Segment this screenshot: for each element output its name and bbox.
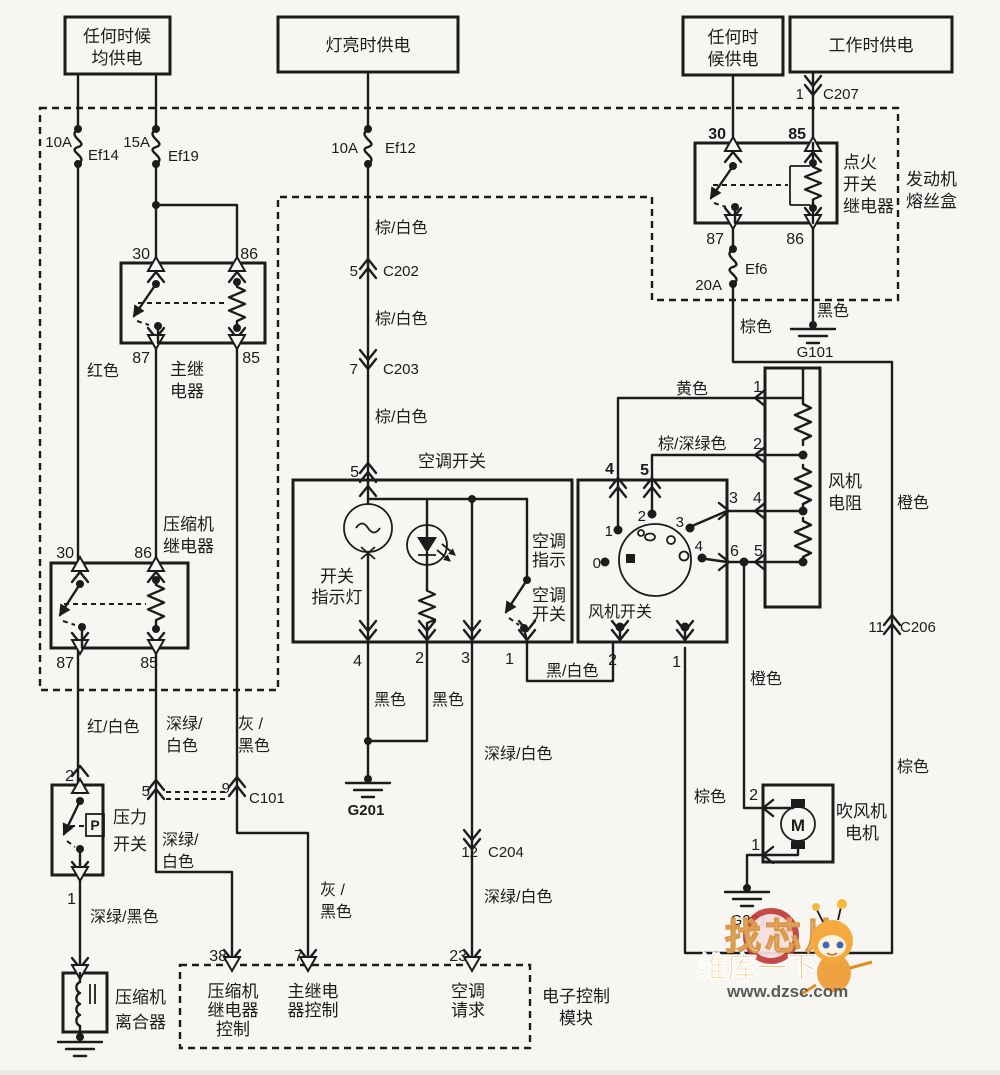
arm-link [714, 203, 726, 207]
clutch-core [90, 984, 95, 1004]
c204-label: C204 [488, 844, 524, 861]
motor-label1: 吹风机 [836, 802, 887, 821]
c101-label: C101 [249, 790, 285, 807]
label-grayblack-a1: 灰 / [238, 715, 263, 733]
resistor-label2: 电阻 [828, 494, 862, 513]
coil-frame [790, 166, 810, 205]
ecu-pin23: 23 [449, 948, 467, 965]
main-pin86: 86 [240, 246, 258, 263]
ind-label2: 指示 [532, 551, 566, 570]
label-dgwhite-d: 深绿/白色 [484, 888, 552, 906]
ign-pin30: 30 [708, 126, 726, 143]
fuse-ef12-icon [364, 125, 372, 168]
main-relay-label2: 电器 [170, 382, 204, 401]
clutch-label2: 离合器 [115, 1013, 166, 1032]
fuse-ef19-icon [152, 125, 160, 168]
ecu-f1-l3: 控制 [216, 1020, 250, 1039]
ground-icon [346, 783, 390, 797]
c203-label: C203 [383, 361, 419, 378]
power-box-anytime2-label: 任何时 [708, 28, 759, 47]
wire-brown-dkgreen [652, 455, 765, 480]
label-red: 红色 [87, 362, 119, 380]
watermark-text-2: 维库一下 [697, 952, 817, 985]
pressure-p-label: P [90, 817, 99, 833]
label-grayblack-b2: 黑色 [320, 903, 352, 921]
label-brown-ef6: 棕色 [740, 318, 772, 336]
fuse-ef6-amp: 20A [695, 277, 722, 294]
c207-pin: 1 [796, 86, 804, 103]
blower-top-pin4: 4 [605, 461, 614, 478]
wire-ef19-branch [156, 205, 237, 263]
led-triangle [417, 537, 437, 553]
comp-pin86: 86 [134, 545, 152, 562]
label-red-white: 红/白色 [87, 718, 139, 736]
motor-pin1: 1 [751, 837, 760, 854]
fuse-ef19-name: Ef19 [168, 148, 199, 165]
ecu-pin38: 38 [209, 948, 227, 965]
compressor-relay: 30 86 87 85 压缩机 继电器 [51, 515, 214, 672]
c207-label: C207 [823, 86, 859, 103]
g201-ac-label: G201 [348, 802, 385, 819]
clutch-label1: 压缩机 [115, 988, 166, 1007]
link [509, 618, 519, 625]
rotary-mark [667, 536, 675, 544]
blower-switch-label: 风机开关 [588, 603, 652, 621]
fuse-ef6-icon [729, 245, 737, 288]
c101-pin5: 5 [142, 783, 150, 800]
arrowhead-icon [705, 186, 722, 203]
label-orange-motor: 橙色 [750, 670, 782, 688]
ac-pin3: 3 [461, 650, 470, 667]
watermark: 找芯片 维库一下 www.dzsc.com [697, 899, 872, 1001]
sw-label2: 开关 [532, 605, 566, 624]
ign-pin85: 85 [788, 126, 806, 143]
fuse-ef19-amp: 15A [123, 134, 150, 151]
label-brown-dkgreen: 棕/深绿色 [658, 435, 726, 453]
c203-pin: 7 [350, 361, 358, 378]
label-brown-left: 棕色 [694, 788, 726, 806]
ground-icon [791, 329, 835, 343]
rotary-mark [680, 552, 689, 561]
ign-pin87: 87 [706, 231, 724, 248]
resistor-pin2: 2 [753, 436, 762, 453]
power-source-boxes: 任何时候 均供电 灯亮时供电 任何时 候供电 工作时供电 [65, 17, 952, 75]
motor-brush [791, 799, 805, 807]
label-dgwhite-b2: 白色 [162, 853, 194, 871]
ac-switch-assembly: 空调开关 5 开关 指示灯 空调 指示 空调 开关 4 2 3 1 [293, 452, 572, 670]
blower-resistor-box [765, 368, 820, 607]
blower-top-pin5: 5 [640, 462, 649, 479]
ecu-f1-l2: 继电器 [208, 1001, 259, 1020]
ac-switch-header: 空调开关 [418, 452, 486, 471]
resistor-pin1: 1 [753, 379, 762, 396]
ac-pin5: 5 [350, 464, 359, 481]
ind-label1: 空调 [532, 532, 566, 551]
label-dgwhite-a2: 白色 [166, 737, 198, 755]
main-relay: 30 86 87 85 主继 电器 [121, 246, 265, 401]
c206-pin: 11 [868, 619, 884, 636]
blower-switch: 4 5 0 1 2 3 4 3 4 6 5 2 1 风机开关 [578, 461, 763, 671]
blower-bot-pin1: 1 [672, 654, 681, 671]
c204-pin: 12 [461, 844, 478, 861]
tap-wires [618, 480, 652, 526]
ecu: 38 7 23 压缩机 继电器 控制 主继电 器控制 空调 请求 电子控制 模块 [208, 948, 611, 1039]
ign-pin86: 86 [786, 231, 804, 248]
label-dgwhite-a1: 深绿/ [166, 715, 203, 733]
label-black: 黑色 [817, 302, 849, 320]
fuse-ef12-name: Ef12 [385, 140, 416, 157]
wire-brown-feed [685, 223, 892, 953]
fuse-ef14-amp: 10A [45, 134, 72, 151]
coil-icon [805, 164, 821, 204]
comp-pin30: 30 [56, 545, 74, 562]
c101-pin9: 9 [222, 780, 230, 797]
resistor-icon [795, 401, 811, 445]
c202-label: C202 [383, 263, 419, 280]
resistor-label1: 风机 [828, 472, 862, 491]
ac-pin2: 2 [415, 650, 424, 667]
g101-label: G101 [797, 344, 834, 361]
clutch-box [63, 973, 107, 1032]
ecu-pin7: 7 [294, 948, 303, 965]
comp-pin87: 87 [56, 655, 74, 672]
resistor-icon [795, 518, 811, 562]
power-box-lamps-on-label: 灯亮时供电 [326, 36, 411, 55]
power-box-anytime-label2: 均供电 [92, 49, 143, 68]
ac-blower-circuit-diagram: 任何时候 均供电 灯亮时供电 任何时 候供电 工作时供电 [0, 0, 1000, 1070]
relay-stubs [735, 143, 813, 223]
motor-label2: 电机 [845, 824, 879, 843]
fuse-ef14-icon [74, 125, 82, 168]
ecu-label1: 电子控制 [542, 987, 610, 1006]
ground-icon [725, 892, 769, 906]
blower-motor: M 2 1 吹风机 电机 G201 [725, 785, 887, 929]
power-box-anytime-label: 任何时候 [83, 27, 151, 46]
right-pin3: 3 [729, 490, 738, 507]
wire-dkgreen-white [156, 648, 232, 962]
rotary-mark [626, 554, 635, 563]
blower-bot-pin2: 2 [608, 652, 617, 669]
watermark-url: www.dzsc.com [726, 982, 848, 1001]
ac-pin1: 1 [505, 651, 514, 668]
label-grayblack-b1: 灰 / [320, 881, 345, 899]
ecu-f2-l1: 主继电 [288, 982, 339, 1001]
main-relay-label1: 主继 [170, 360, 204, 379]
coil-icon [148, 582, 164, 625]
c202-pin: 5 [350, 263, 358, 280]
main-pin85: 85 [242, 350, 260, 367]
c101-link [166, 792, 229, 799]
pos0: 0 [593, 555, 601, 572]
label-black-1: 黑色 [374, 691, 406, 709]
rotary-mark [645, 534, 655, 541]
label-brown-right: 棕色 [897, 758, 929, 776]
pos1: 1 [605, 523, 613, 540]
label-grayblack-a2: 黑色 [238, 737, 270, 755]
label-black-2: 黑色 [432, 691, 464, 709]
label-black-white: 黑/白色 [546, 662, 598, 680]
ecu-label2: 模块 [559, 1009, 593, 1028]
motor-pin2: 2 [749, 787, 758, 804]
label-orange-right: 橙色 [897, 494, 929, 512]
label-dkgreen-black: 深绿/黑色 [90, 908, 158, 926]
comp-pin85: 85 [140, 655, 158, 672]
sw-label1: 空调 [532, 586, 566, 605]
label-brown-white-1: 棕/白色 [375, 219, 427, 237]
fuse-ef14-name: Ef14 [88, 147, 119, 164]
ecu-f1-l1: 压缩机 [208, 982, 259, 1001]
pressure-pin2: 2 [65, 768, 74, 785]
main-pin87: 87 [132, 350, 150, 367]
pressure-label1: 压力 [113, 808, 147, 827]
pos3: 3 [676, 514, 684, 531]
scanned-wiring-diagram-page: 任何时候 均供电 灯亮时供电 任何时 候供电 工作时供电 [0, 0, 1000, 1070]
fusebox-label2: 熔丝盒 [906, 192, 957, 211]
pos4: 4 [695, 538, 703, 555]
fusebox-label1: 发动机 [906, 170, 957, 189]
rotary-mark [638, 530, 644, 536]
fuse-ef12-amp: 10A [331, 140, 358, 157]
power-box-anytime2-label2: 候供电 [708, 50, 759, 69]
lamp-label1: 开关 [320, 567, 354, 586]
pressure-label2: 开关 [113, 835, 147, 854]
comp-relay-label1: 压缩机 [163, 515, 214, 534]
pressure-pin1: 1 [67, 891, 76, 908]
ac-internal-bus [368, 480, 527, 504]
pressure-switch: P 2 1 压力 开关 [52, 766, 147, 908]
wire-motor-ground [747, 855, 763, 888]
bottom-stubs [620, 627, 685, 642]
label-brown-white-2: 棕/白色 [375, 310, 427, 328]
label-dgwhite-c: 深绿/白色 [484, 745, 552, 763]
ecu-f3-l1: 空调 [451, 982, 485, 1001]
pos2: 2 [638, 508, 646, 525]
ac-pin4: 4 [353, 653, 362, 670]
label-brown-white-3: 棕/白色 [375, 408, 427, 426]
comp-relay-box [51, 563, 188, 648]
compressor-clutch: 压缩机 离合器 [58, 958, 166, 1056]
resistor-icon [795, 465, 811, 509]
resistor-pin4: 4 [753, 490, 762, 507]
lamp-label2: 指示灯 [312, 588, 363, 607]
ecu-f2-l2: 器控制 [288, 1001, 339, 1020]
ign-relay-label3: 继电器 [843, 197, 894, 216]
coil-icon [229, 284, 245, 326]
ground-icon [58, 1042, 102, 1056]
label-dgwhite-b1: 深绿/ [162, 831, 199, 849]
ignition-switch-relay: 30 85 87 86 点火 开关 继电器 [695, 126, 894, 248]
ign-relay-label1: 点火 [843, 153, 877, 172]
links [137, 303, 226, 325]
power-box-at-work-label: 工作时供电 [829, 36, 914, 55]
ign-relay-label2: 开关 [843, 175, 877, 194]
wire-gray-black [237, 343, 308, 962]
bulb-filament [356, 524, 380, 533]
right-pin6: 6 [730, 543, 739, 560]
fuse-ef6-name: Ef6 [745, 261, 768, 278]
resistor-icon [419, 588, 435, 628]
links [63, 604, 146, 625]
blower-resistor: 1 2 风机 电阻 [753, 368, 862, 607]
arrow-up-icon [725, 152, 741, 162]
ecu-f3-l2: 请求 [451, 1001, 485, 1020]
motor-m-label: M [791, 816, 805, 835]
clutch-coil-icon [76, 982, 80, 1026]
label-yellow: 黄色 [676, 380, 708, 398]
main-pin30: 30 [132, 246, 150, 263]
comp-relay-label2: 继电器 [163, 537, 214, 556]
c206-label: C206 [900, 619, 936, 636]
